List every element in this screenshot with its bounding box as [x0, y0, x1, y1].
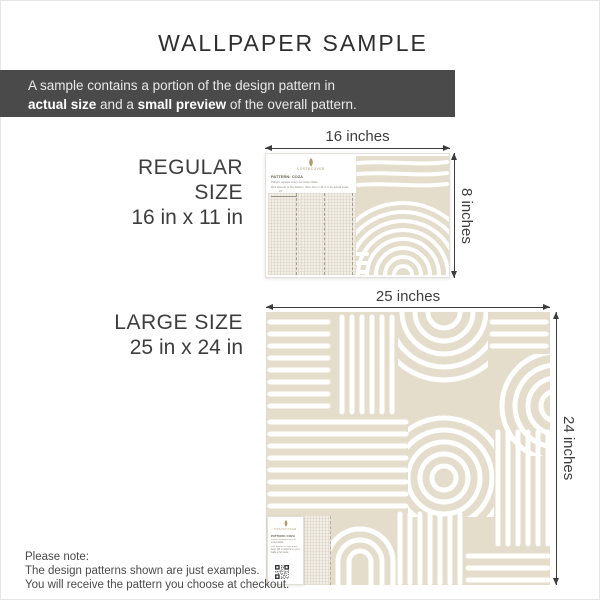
pattern-note-2: Mini artwork of the Pattern, Size 16 in …: [271, 185, 353, 189]
regular-height-dimension-arrow: [454, 153, 455, 278]
banner-line1: A sample contains a portion of the desig…: [28, 76, 455, 95]
pattern-note-1: Pattern repeats every 24 inches Wide.: [271, 180, 353, 184]
large-size-label: LARGE SIZE 25 in x 24 in: [100, 310, 243, 360]
regular-size-heading: REGULAR SIZE: [100, 155, 243, 205]
footer-line2: The design patterns shown are just examp…: [25, 564, 289, 578]
large-width-label: 25 inches: [266, 288, 550, 305]
banner-line2: actual size and a small preview of the o…: [28, 95, 455, 114]
regular-size-label: REGULAR SIZE 16 in x 11 in: [100, 155, 243, 230]
pattern-name: PATTERN: COZA: [271, 174, 303, 179]
actual-size-swatch: [268, 193, 356, 275]
large-height-label: 24 inches: [560, 312, 577, 585]
brand-name: COSTACOVER: [268, 528, 303, 531]
panel-divider-dashed-line: [324, 193, 325, 275]
regular-width-label: 16 inches: [265, 128, 450, 145]
actual-size-strip: [304, 516, 331, 585]
brand-name: COSTACOVER: [266, 167, 356, 171]
regular-width-dimension-arrow: [265, 148, 450, 149]
regular-height-label: 8 inches: [458, 153, 475, 278]
pattern-preview-small: [356, 156, 449, 275]
large-height-dimension-arrow: [556, 312, 557, 585]
footer-note: Please note: The design patterns shown a…: [25, 550, 289, 592]
panel-divider-dashed-line: [352, 193, 353, 275]
regular-sample-card: COSTACOVER PATTERN: COZA Pattern repeats…: [265, 153, 450, 278]
large-width-dimension-arrow: [266, 307, 550, 308]
banner-bold-actual-size: actual size: [28, 97, 96, 112]
page-title: WALLPAPER SAMPLE: [0, 30, 586, 57]
panel-divider-dashed-line: [296, 193, 297, 275]
regular-size-dimensions: 16 in x 11 in: [100, 205, 243, 230]
repeat-width-label: 24": [279, 190, 283, 193]
banner-bold-small-preview: small preview: [138, 97, 227, 112]
brand-logo-icon: [307, 158, 315, 167]
info-banner: A sample contains a portion of the desig…: [0, 70, 455, 117]
footer-line1: Please note:: [25, 550, 289, 564]
wallpaper-sample-infographic: WALLPAPER SAMPLE A sample contains a por…: [0, 0, 600, 600]
footer-line3: You will receive the pattern you choose …: [25, 578, 289, 592]
large-size-heading: LARGE SIZE: [100, 310, 243, 335]
repeat-width-arrow: [271, 196, 297, 197]
pattern-note-1: Pattern repeats every 24 inches Wide.: [271, 539, 301, 545]
large-size-dimensions: 25 in x 24 in: [100, 335, 243, 360]
brand-logo-icon: [283, 520, 289, 527]
pattern-name: PATTERN: COZA: [271, 534, 295, 538]
